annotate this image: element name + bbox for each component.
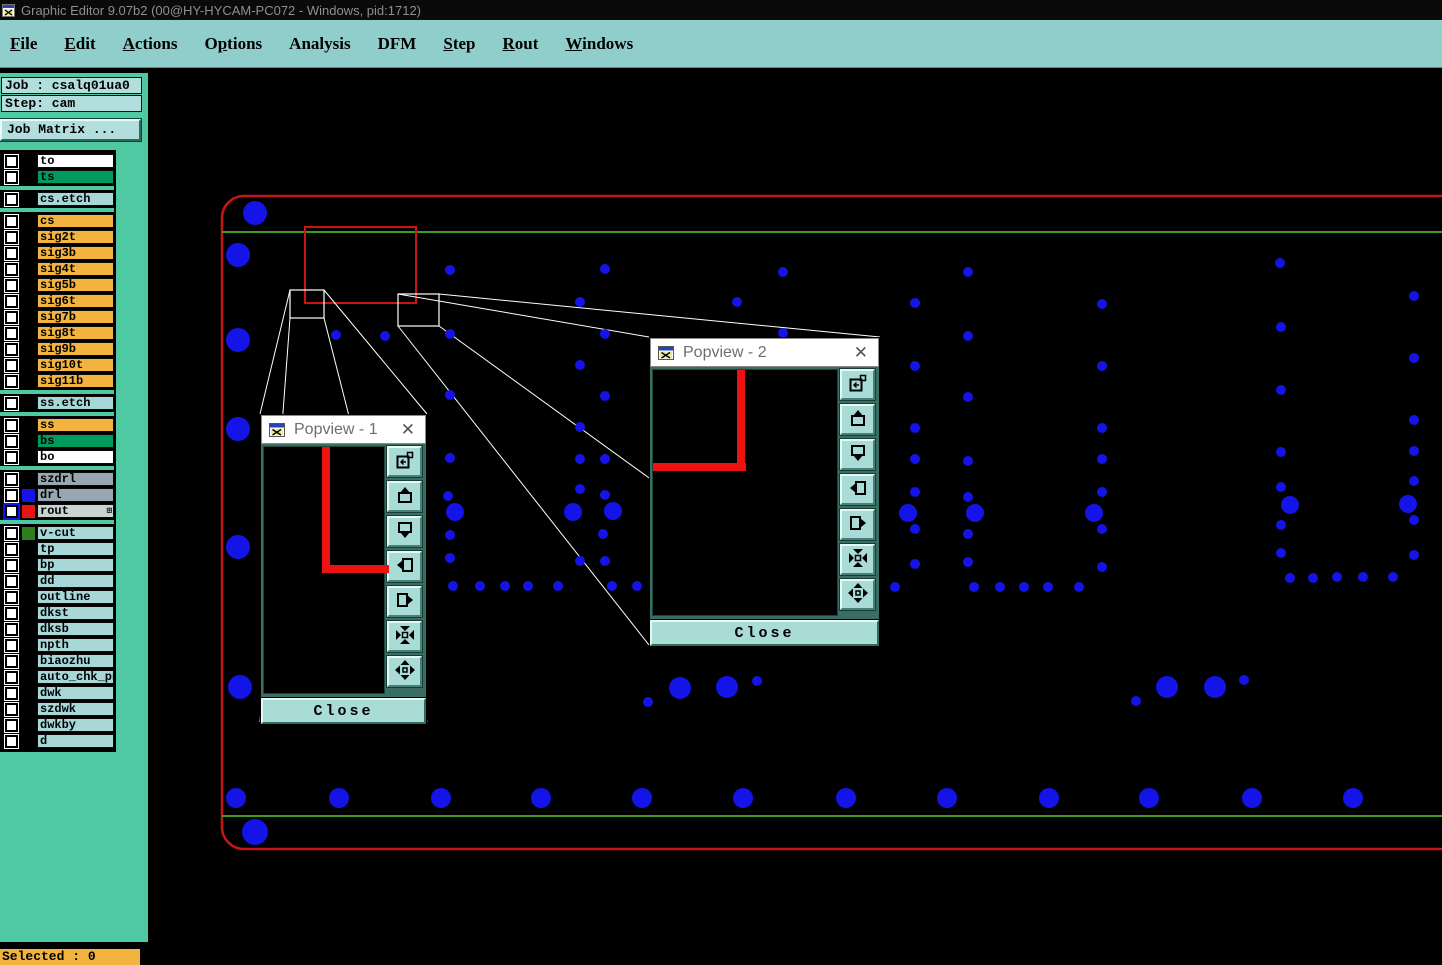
popview-titlebar[interactable]: Popview - 2✕ — [650, 338, 879, 367]
drill-hole-dot — [1343, 788, 1363, 808]
zoom-expand-button[interactable] — [387, 656, 422, 687]
menu-windows[interactable]: Windows — [565, 34, 633, 54]
layer-checkbox-ss[interactable] — [5, 419, 18, 432]
layer-name-label[interactable]: to — [37, 154, 114, 168]
layer-name-label[interactable]: dksb — [37, 622, 114, 636]
rout-path-segment — [322, 565, 389, 573]
copy-view-icon — [848, 373, 868, 396]
layer-name-label[interactable]: rout⊞ — [37, 504, 114, 518]
layer-color-chip — [22, 397, 35, 410]
drill-hole-dot — [575, 454, 585, 464]
layer-checkbox-sig5b[interactable] — [5, 279, 18, 292]
popview-window-2: Popview - 2✕Close — [649, 337, 880, 647]
drill-hole-dot — [1097, 487, 1107, 497]
layer-row-ts[interactable]: ts — [0, 169, 114, 185]
close-icon[interactable]: ✕ — [851, 343, 871, 363]
drill-hole-dot — [1097, 524, 1107, 534]
layer-row-d[interactable]: d — [0, 733, 114, 749]
close-icon[interactable]: ✕ — [398, 420, 418, 440]
popview-title: Popview - 1 — [294, 421, 378, 439]
menu-edit[interactable]: Edit — [64, 34, 95, 54]
layer-name-label[interactable]: sig9b — [37, 342, 114, 356]
drill-hole-dot — [1285, 573, 1295, 583]
layer-name-label[interactable]: ss.etch — [37, 396, 114, 410]
popview-toolbar — [387, 446, 424, 694]
layer-row-v-cut[interactable]: v-cut — [0, 525, 114, 541]
layer-row-sig3b[interactable]: sig3b — [0, 245, 114, 261]
layer-name-label[interactable]: auto_chk_pnl — [37, 670, 114, 684]
drill-hole-dot — [1039, 788, 1059, 808]
copy-view-button[interactable] — [387, 446, 422, 477]
drill-hole-dot — [910, 454, 920, 464]
pan-up-button[interactable] — [387, 481, 422, 512]
active-layer-grid-icon: ⊞ — [107, 507, 113, 516]
drill-hole-dot — [1388, 572, 1398, 582]
rout-path-segment — [322, 447, 330, 573]
menu-actions[interactable]: Actions — [123, 34, 178, 54]
app-icon — [2, 4, 15, 17]
popview-titlebar[interactable]: Popview - 1✕ — [261, 415, 426, 444]
layer-row-drl[interactable]: drl — [0, 487, 114, 503]
layer-checkbox-auto_chk_pnl[interactable] — [5, 671, 18, 684]
layer-group: cs.etch — [0, 190, 114, 208]
drill-hole-dot — [1074, 582, 1084, 592]
drill-hole-dot — [963, 267, 973, 277]
drill-hole-dot — [445, 453, 455, 463]
layer-checkbox-rout[interactable] — [5, 505, 18, 518]
layer-color-chip — [22, 735, 35, 748]
layer-name-label[interactable]: dd — [37, 574, 114, 588]
drill-hole-dot — [963, 492, 973, 502]
layer-color-chip — [22, 719, 35, 732]
layer-color-chip — [22, 591, 35, 604]
zoom-expand-icon — [848, 583, 868, 606]
drill-hole-dot — [600, 556, 610, 566]
drill-hole-dot — [600, 329, 610, 339]
drill-hole-dot — [600, 490, 610, 500]
layer-row-sig2t[interactable]: sig2t — [0, 229, 114, 245]
layer-color-chip — [22, 435, 35, 448]
drill-hole-dot — [1097, 454, 1107, 464]
layer-row-szdwk[interactable]: szdwk — [0, 701, 114, 717]
drill-hole-dot — [226, 535, 250, 559]
drill-hole-dot — [1409, 291, 1419, 301]
drill-hole-dot — [1358, 572, 1368, 582]
drill-hole-dot — [226, 417, 250, 441]
layer-name-label[interactable]: sig3b — [37, 246, 114, 260]
zoom-callout-line — [398, 326, 649, 645]
layer-color-chip — [22, 639, 35, 652]
layer-row-outline[interactable]: outline — [0, 589, 114, 605]
layer-group: szdrldrlrout⊞ — [0, 470, 114, 520]
pan-left-button[interactable] — [387, 551, 422, 582]
drill-hole-dot — [598, 529, 608, 539]
job-label: Job : csalq01ua0 — [1, 77, 142, 94]
layer-checkbox-sig8t[interactable] — [5, 327, 18, 340]
drill-hole-dot — [445, 553, 455, 563]
step-label: Step: cam — [1, 95, 142, 112]
drill-hole-dot — [1139, 788, 1159, 808]
drill-hole-dot — [523, 581, 533, 591]
drill-hole-dot — [243, 201, 267, 225]
zoom-contract-icon — [395, 625, 415, 648]
menu-dfm[interactable]: DFM — [378, 34, 417, 54]
drill-hole-dot — [604, 502, 622, 520]
layer-name-label[interactable]: biaozhu — [37, 654, 114, 668]
layer-checkbox-bs[interactable] — [5, 435, 18, 448]
layer-row-szdrl[interactable]: szdrl — [0, 471, 114, 487]
drill-hole-dot — [995, 582, 1005, 592]
window-titlebar[interactable]: Graphic Editor 9.07b2 (00@HY-HYCAM-PC072… — [0, 0, 1442, 20]
layer-name-label[interactable]: sig11b — [37, 374, 114, 388]
layer-color-chip — [22, 375, 35, 388]
layer-color-chip — [22, 155, 35, 168]
drill-hole-dot — [242, 819, 268, 845]
drill-hole-dot — [910, 487, 920, 497]
layer-color-chip — [22, 489, 35, 502]
layer-checkbox-sig9b[interactable] — [5, 343, 18, 356]
layer-row-dkst[interactable]: dkst — [0, 605, 114, 621]
drill-hole-dot — [937, 788, 957, 808]
drill-hole-dot — [1097, 361, 1107, 371]
layer-row-dd[interactable]: dd — [0, 573, 114, 589]
layer-name-label[interactable]: sig6t — [37, 294, 114, 308]
layer-group: tots — [0, 152, 114, 186]
drill-hole-dot — [1085, 504, 1103, 522]
layer-row-dksb[interactable]: dksb — [0, 621, 114, 637]
layer-checkbox-dksb[interactable] — [5, 623, 18, 636]
layer-row-sig5b[interactable]: sig5b — [0, 277, 114, 293]
popview-canvas[interactable] — [652, 369, 838, 616]
drill-hole-dot — [752, 676, 762, 686]
pan-right-button[interactable] — [387, 586, 422, 617]
layer-color-chip — [22, 215, 35, 228]
popview-toolbar — [840, 369, 877, 616]
drill-hole-dot — [600, 391, 610, 401]
layer-row-bs[interactable]: bs — [0, 433, 114, 449]
drill-hole-dot — [329, 788, 349, 808]
layer-row-bo[interactable]: bo — [0, 449, 114, 465]
drill-hole-dot — [1276, 322, 1286, 332]
layer-checkbox-dd[interactable] — [5, 575, 18, 588]
layer-group: cssig2tsig3bsig4tsig5bsig6tsig7bsig8tsig… — [0, 212, 114, 390]
window-title: Graphic Editor 9.07b2 (00@HY-HYCAM-PC072… — [21, 3, 421, 18]
layer-color-chip — [22, 623, 35, 636]
pan-down-icon — [395, 520, 415, 543]
drill-hole-dot — [226, 328, 250, 352]
pan-down-button[interactable] — [840, 439, 875, 470]
layer-name-label[interactable]: sig4t — [37, 262, 114, 276]
drill-hole-dot — [443, 491, 453, 501]
drill-hole-dot — [1399, 495, 1417, 513]
zoom-callout-line — [439, 294, 880, 337]
menu-options[interactable]: Options — [204, 34, 262, 54]
layer-checkbox-cs.etch[interactable] — [5, 193, 18, 206]
layer-checkbox-drl[interactable] — [5, 489, 18, 502]
layer-name-label[interactable]: ss — [37, 418, 114, 432]
layer-name-label[interactable]: d — [37, 734, 114, 748]
layer-name-label[interactable]: dwk — [37, 686, 114, 700]
pan-down-icon — [848, 443, 868, 466]
layer-name-label[interactable]: dwkby — [37, 718, 114, 732]
drill-hole-dot — [732, 297, 742, 307]
drill-hole-dot — [226, 788, 246, 808]
layer-color-chip — [22, 359, 35, 372]
layer-checkbox-npth[interactable] — [5, 639, 18, 652]
layer-name-label[interactable]: sig8t — [37, 326, 114, 340]
layer-name-label[interactable]: drl — [37, 488, 114, 502]
drill-hole-dot — [553, 581, 563, 591]
copy-view-icon — [395, 450, 415, 473]
drill-hole-dot — [1156, 676, 1178, 698]
layer-row-dwkby[interactable]: dwkby — [0, 717, 114, 733]
pan-up-icon — [395, 485, 415, 508]
popview-title: Popview - 2 — [683, 344, 767, 362]
layer-row-sig9b[interactable]: sig9b — [0, 341, 114, 357]
drill-hole-dot — [643, 697, 653, 707]
menu-step[interactable]: Step — [443, 34, 475, 54]
drill-hole-dot — [431, 788, 451, 808]
popview-close-button[interactable]: Close — [261, 698, 426, 724]
layer-row-biaozhu[interactable]: biaozhu — [0, 653, 114, 669]
layer-name-label[interactable]: bo — [37, 450, 114, 464]
layer-name-label[interactable]: sig5b — [37, 278, 114, 292]
drill-hole-dot — [1275, 258, 1285, 268]
drill-hole-dot — [669, 677, 691, 699]
drill-hole-dot — [1409, 446, 1419, 456]
layer-color-chip — [22, 473, 35, 486]
drill-hole-dot — [446, 503, 464, 521]
drill-hole-dot — [716, 676, 738, 698]
layer-row-sig8t[interactable]: sig8t — [0, 325, 114, 341]
zoom-callout-line — [260, 290, 290, 414]
layer-row-to[interactable]: to — [0, 153, 114, 169]
drill-hole-dot — [600, 454, 610, 464]
drill-hole-dot — [778, 267, 788, 277]
layer-row-sig7b[interactable]: sig7b — [0, 309, 114, 325]
layer-checkbox-szdwk[interactable] — [5, 703, 18, 716]
drill-hole-dot — [445, 265, 455, 275]
layer-name-label[interactable]: bs — [37, 434, 114, 448]
drill-hole-dot — [1131, 696, 1141, 706]
layer-color-chip — [22, 575, 35, 588]
layer-name-label[interactable]: sig2t — [37, 230, 114, 244]
layer-row-cs[interactable]: cs — [0, 213, 114, 229]
drill-hole-dot — [969, 582, 979, 592]
layer-checkbox-sig7b[interactable] — [5, 311, 18, 324]
copy-view-button[interactable] — [840, 369, 875, 400]
layer-checkbox-sig2t[interactable] — [5, 231, 18, 244]
layer-checkbox-outline[interactable] — [5, 591, 18, 604]
layer-checkbox-biaozhu[interactable] — [5, 655, 18, 668]
layer-row-sig4t[interactable]: sig4t — [0, 261, 114, 277]
layer-color-chip — [22, 419, 35, 432]
layer-color-chip — [22, 193, 35, 206]
layer-color-chip — [22, 171, 35, 184]
pan-down-button[interactable] — [387, 516, 422, 547]
menu-file[interactable]: File — [10, 34, 37, 54]
layer-checkbox-ts[interactable] — [5, 171, 18, 184]
layer-name-label[interactable]: szdrl — [37, 472, 114, 486]
layer-checkbox-d[interactable] — [5, 735, 18, 748]
drill-hole-dot — [963, 331, 973, 341]
drill-hole-dot — [910, 559, 920, 569]
layer-row-sig6t[interactable]: sig6t — [0, 293, 114, 309]
layer-color-chip — [22, 295, 35, 308]
drill-hole-dot — [910, 298, 920, 308]
layer-name-label[interactable]: cs.etch — [37, 192, 114, 206]
layer-color-chip — [22, 527, 35, 540]
layer-color-chip — [22, 279, 35, 292]
layer-name-label[interactable]: v-cut — [37, 526, 114, 540]
layer-color-chip — [22, 311, 35, 324]
drill-hole-dot — [445, 390, 455, 400]
zoom-contract-button[interactable] — [840, 544, 875, 575]
layer-checkbox-sig4t[interactable] — [5, 263, 18, 276]
drill-hole-dot — [1276, 385, 1286, 395]
layer-color-chip — [22, 655, 35, 668]
pan-left-icon — [848, 478, 868, 501]
drill-hole-dot — [575, 360, 585, 370]
menu-analysis[interactable]: Analysis — [289, 34, 350, 54]
drill-hole-dot — [607, 581, 617, 591]
drill-hole-dot — [448, 581, 458, 591]
layer-color-chip — [22, 327, 35, 340]
drill-hole-dot — [836, 788, 856, 808]
drill-hole-dot — [1239, 675, 1249, 685]
layer-name-label[interactable]: ts — [37, 170, 114, 184]
drill-hole-dot — [910, 361, 920, 371]
drill-hole-dot — [1097, 299, 1107, 309]
drill-hole-dot — [575, 422, 585, 432]
layer-checkbox-sig6t[interactable] — [5, 295, 18, 308]
layer-checkbox-tp[interactable] — [5, 543, 18, 556]
layer-row-cs.etch[interactable]: cs.etch — [0, 191, 114, 207]
layer-checkbox-dwkby[interactable] — [5, 719, 18, 732]
layer-checkbox-dwk[interactable] — [5, 687, 18, 700]
rout-path-segment — [653, 463, 746, 471]
menu-bar: FileEditActionsOptionsAnalysisDFMStepRou… — [0, 20, 1442, 68]
layer-row-dwk[interactable]: dwk — [0, 685, 114, 701]
layer-name-label[interactable]: bp — [37, 558, 114, 572]
job-matrix-button[interactable]: Job Matrix ... — [0, 119, 141, 141]
layer-row-sig10t[interactable]: sig10t — [0, 357, 114, 373]
layer-row-ss.etch[interactable]: ss.etch — [0, 395, 114, 411]
layer-name-label[interactable]: npth — [37, 638, 114, 652]
layer-name-label[interactable]: sig10t — [37, 358, 114, 372]
rout-path-segment — [737, 370, 745, 471]
zoom-contract-icon — [848, 548, 868, 571]
zoom-expand-icon — [395, 660, 415, 683]
layer-color-chip — [22, 671, 35, 684]
layer-checkbox-dkst[interactable] — [5, 607, 18, 620]
drill-hole-dot — [1276, 447, 1286, 457]
selection-rect — [305, 227, 416, 303]
layer-row-tp[interactable]: tp — [0, 541, 114, 557]
drill-hole-dot — [575, 484, 585, 494]
drill-hole-dot — [1281, 496, 1299, 514]
layer-name-label[interactable]: sig7b — [37, 310, 114, 324]
pan-right-button[interactable] — [840, 509, 875, 540]
layer-checkbox-bp[interactable] — [5, 559, 18, 572]
layer-checkbox-sig10t[interactable] — [5, 359, 18, 372]
layer-group: v-cuttpbpddoutlinedkstdksbnpthbiaozhuaut… — [0, 524, 114, 750]
drill-hole-dot — [890, 582, 900, 592]
layer-group: ssbsbo — [0, 416, 114, 466]
layer-checkbox-cs[interactable] — [5, 215, 18, 228]
zoom-expand-button[interactable] — [840, 579, 875, 610]
zoom-contract-button[interactable] — [387, 621, 422, 652]
layer-checkbox-szdrl[interactable] — [5, 473, 18, 486]
layer-name-label[interactable]: szdwk — [37, 702, 114, 716]
drill-hole-dot — [475, 581, 485, 591]
drill-hole-dot — [380, 331, 390, 341]
drill-hole-dot — [1019, 582, 1029, 592]
layer-color-chip — [22, 559, 35, 572]
layer-name-label[interactable]: cs — [37, 214, 114, 228]
drill-hole-dot — [632, 788, 652, 808]
layer-name-label[interactable]: outline — [37, 590, 114, 604]
drill-hole-dot — [564, 503, 582, 521]
layer-checkbox-to[interactable] — [5, 155, 18, 168]
layer-row-npth[interactable]: npth — [0, 637, 114, 653]
layer-row-ss[interactable]: ss — [0, 417, 114, 433]
layer-checkbox-ss.etch[interactable] — [5, 397, 18, 410]
popview-icon — [269, 423, 285, 437]
sidebar: Job : csalq01ua0 Step: cam Job Matrix ..… — [0, 73, 148, 942]
drill-hole-dot — [600, 264, 610, 274]
pan-left-button[interactable] — [840, 474, 875, 505]
pan-up-button[interactable] — [840, 404, 875, 435]
layer-row-sig11b[interactable]: sig11b — [0, 373, 114, 389]
drill-hole-dot — [1409, 415, 1419, 425]
popview-close-button[interactable]: Close — [650, 620, 879, 646]
drill-hole-dot — [1097, 423, 1107, 433]
layer-color-chip — [22, 263, 35, 276]
zoom-callout-line — [324, 290, 427, 414]
layer-color-chip — [22, 607, 35, 620]
drill-hole-dot — [910, 423, 920, 433]
layer-row-bp[interactable]: bp — [0, 557, 114, 573]
drill-hole-dot — [1409, 515, 1419, 525]
drill-hole-dot — [1409, 353, 1419, 363]
drill-hole-dot — [228, 675, 252, 699]
layer-checkbox-sig11b[interactable] — [5, 375, 18, 388]
popview-icon — [658, 346, 674, 360]
zoom-callout-line — [398, 294, 649, 337]
layer-list: totscs.etchcssig2tsig3bsig4tsig5bsig6tsi… — [0, 150, 116, 752]
layer-checkbox-sig3b[interactable] — [5, 247, 18, 260]
popview-canvas[interactable] — [263, 446, 385, 694]
drill-hole-dot — [1204, 676, 1226, 698]
drill-hole-dot — [1043, 582, 1053, 592]
layer-checkbox-bo[interactable] — [5, 451, 18, 464]
drill-hole-dot — [963, 529, 973, 539]
menu-rout[interactable]: Rout — [503, 34, 539, 54]
layer-row-rout[interactable]: rout⊞ — [0, 503, 114, 519]
drill-hole-dot — [445, 329, 455, 339]
drill-hole-dot — [910, 524, 920, 534]
layer-color-chip — [22, 543, 35, 556]
layer-row-auto_chk_pnl[interactable]: auto_chk_pnl — [0, 669, 114, 685]
drill-hole-dot — [1332, 572, 1342, 582]
layer-name-label[interactable]: dkst — [37, 606, 114, 620]
layer-checkbox-v-cut[interactable] — [5, 527, 18, 540]
drill-hole-dot — [632, 581, 642, 591]
drill-hole-dot — [899, 504, 917, 522]
layer-name-label[interactable]: tp — [37, 542, 114, 556]
drill-hole-dot — [1409, 550, 1419, 560]
